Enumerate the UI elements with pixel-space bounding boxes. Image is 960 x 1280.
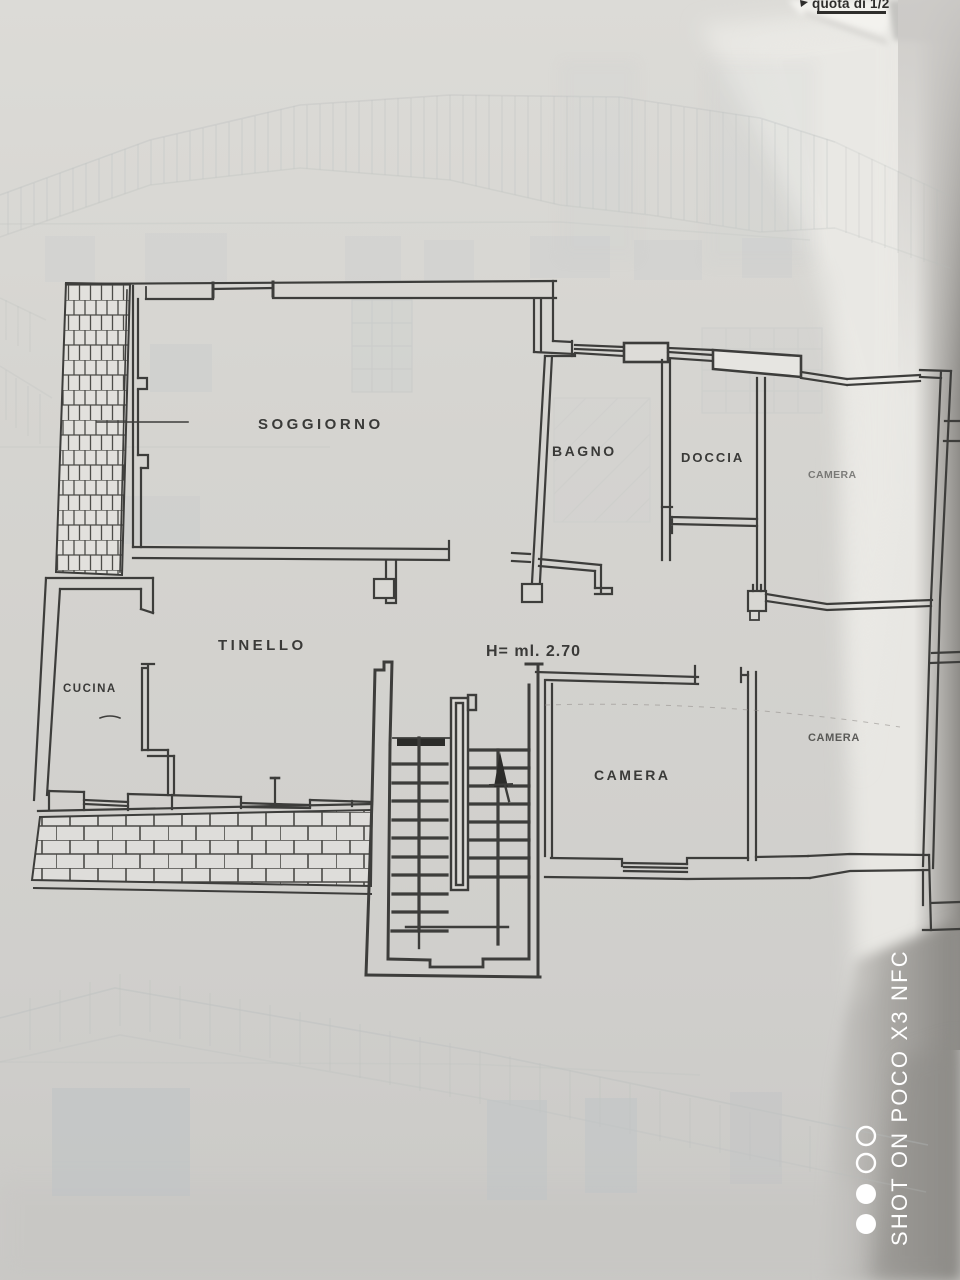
svg-text:CAMERA: CAMERA: [594, 767, 670, 783]
svg-text:CAMERA: CAMERA: [808, 469, 856, 481]
svg-text:BAGNO: BAGNO: [552, 443, 617, 459]
svg-text:DOCCIA: DOCCIA: [681, 450, 744, 465]
svg-text:CUCINA: CUCINA: [63, 683, 117, 695]
svg-text:TINELLO: TINELLO: [218, 637, 307, 654]
svg-text:SHOT ON POCO X3 NFC: SHOT ON POCO X3 NFC: [887, 949, 912, 1246]
svg-text:SOGGIORNO: SOGGIORNO: [258, 416, 384, 433]
svg-text:H= ml. 2.70: H= ml. 2.70: [486, 643, 581, 660]
svg-text:quota di 1/2: quota di 1/2: [812, 0, 889, 11]
svg-text:CAMERA: CAMERA: [808, 732, 860, 744]
